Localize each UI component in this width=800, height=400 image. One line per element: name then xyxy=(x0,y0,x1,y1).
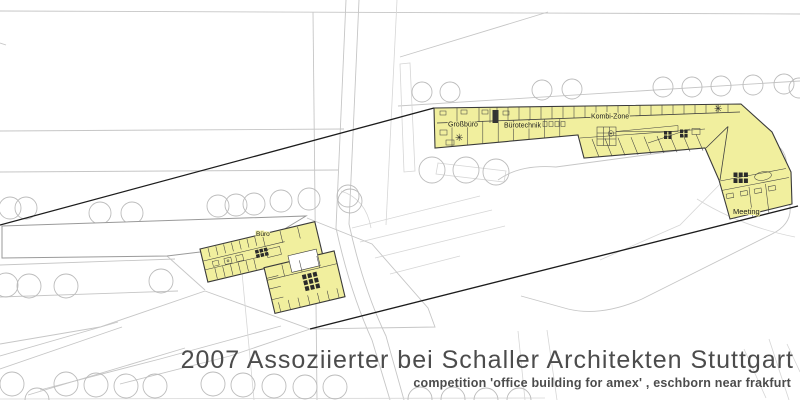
tree-icon xyxy=(323,375,347,399)
tree-icon xyxy=(562,79,582,99)
core-cell xyxy=(739,179,743,184)
core-cell xyxy=(744,179,748,184)
site-plan-canvas: Büro xyxy=(0,0,800,400)
tree-icon xyxy=(243,193,265,215)
tree-icon xyxy=(121,202,143,224)
tree-icon xyxy=(774,74,794,94)
tree-icon xyxy=(262,374,286,398)
tree-icon xyxy=(298,188,320,210)
core-cell xyxy=(744,173,748,178)
tree-icon xyxy=(143,374,167,398)
tree-icon xyxy=(440,82,460,102)
tree-icon xyxy=(201,372,225,396)
tree-icon xyxy=(0,273,18,297)
label-meeting: Meeting xyxy=(733,207,760,216)
core-cell xyxy=(739,173,743,178)
tree-icon xyxy=(743,75,763,95)
tree-icon xyxy=(231,373,255,397)
caption: 2007 Assoziierter bei Schaller Architekt… xyxy=(181,346,794,390)
tree-icon xyxy=(270,190,292,212)
label-buerotechnik: Bürotechnik xyxy=(504,123,541,130)
tree-icon xyxy=(293,375,317,399)
tree-icon xyxy=(412,82,432,102)
caption-subtitle: competition 'office building for amex' ,… xyxy=(413,376,791,390)
tree-icon xyxy=(0,372,24,396)
tree-icon xyxy=(149,269,173,293)
core-cell xyxy=(734,173,738,178)
sun-icon: ✳ xyxy=(714,104,722,115)
tree-icon xyxy=(337,185,359,207)
tree-icon xyxy=(453,157,479,183)
tree-icon xyxy=(89,202,111,224)
tree-icon xyxy=(114,374,138,398)
tree-icon xyxy=(207,195,229,217)
connector-line-bottom xyxy=(310,206,798,329)
tree-icon xyxy=(84,373,108,397)
tree-icon xyxy=(653,77,673,97)
label-buero: Büro xyxy=(256,231,270,238)
tree-icon xyxy=(225,194,247,216)
label-kombi-zone: Kombi-Zone xyxy=(591,114,629,121)
tree-icon xyxy=(419,157,445,183)
core-cell xyxy=(734,179,738,184)
portfolio-page: Büro xyxy=(0,0,800,400)
caption-title: 2007 Assoziierter bei Schaller Architekt… xyxy=(181,346,794,374)
site-plan-lines xyxy=(0,0,800,400)
sun-icon: ✳ xyxy=(455,133,463,144)
connector-line-top xyxy=(0,108,434,225)
tree-icon xyxy=(17,274,41,298)
label-grossbuero: Großbüro xyxy=(448,122,478,129)
